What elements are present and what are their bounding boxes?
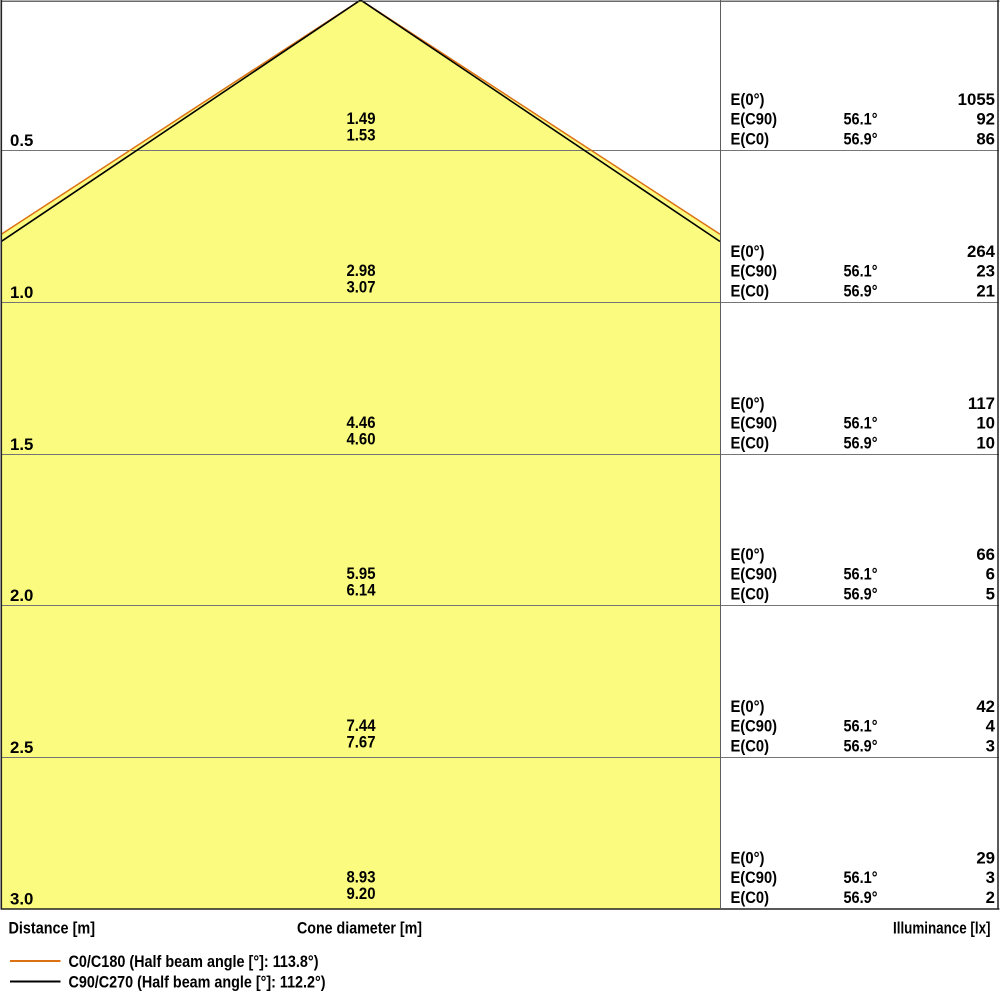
svg-text:1055: 1055 <box>958 90 995 109</box>
svg-text:56.9°: 56.9° <box>844 282 878 301</box>
svg-text:1.0: 1.0 <box>10 283 33 302</box>
svg-text:42: 42 <box>976 697 995 716</box>
svg-text:1.53: 1.53 <box>347 125 376 144</box>
svg-text:1.5: 1.5 <box>10 435 33 454</box>
svg-text:E(C90): E(C90) <box>731 868 778 887</box>
svg-text:86: 86 <box>976 130 995 149</box>
svg-text:E(C90): E(C90) <box>731 414 778 433</box>
svg-text:7.67: 7.67 <box>347 732 376 751</box>
svg-text:Distance [m]: Distance [m] <box>9 918 96 937</box>
svg-text:3: 3 <box>986 868 995 887</box>
svg-text:E(0°): E(0°) <box>731 697 765 716</box>
svg-text:2.0: 2.0 <box>10 586 33 605</box>
svg-text:Cone diameter [m]: Cone diameter [m] <box>297 918 422 937</box>
svg-text:E(C0): E(C0) <box>731 585 770 604</box>
svg-text:56.9°: 56.9° <box>844 434 878 453</box>
svg-text:56.1°: 56.1° <box>844 414 878 433</box>
svg-text:10: 10 <box>976 434 995 453</box>
svg-text:3: 3 <box>986 737 995 756</box>
svg-text:E(C0): E(C0) <box>731 130 770 149</box>
svg-text:66: 66 <box>976 545 995 564</box>
svg-text:E(0°): E(0°) <box>731 848 765 867</box>
svg-text:3.07: 3.07 <box>347 277 376 296</box>
svg-text:Illuminance [lx]: Illuminance [lx] <box>893 918 991 937</box>
svg-text:56.9°: 56.9° <box>844 585 878 604</box>
svg-text:2: 2 <box>986 888 995 907</box>
svg-text:56.9°: 56.9° <box>844 888 878 907</box>
svg-text:21: 21 <box>976 282 995 301</box>
svg-text:56.1°: 56.1° <box>844 717 878 736</box>
svg-text:0.5: 0.5 <box>10 131 33 150</box>
svg-text:E(0°): E(0°) <box>731 545 765 564</box>
svg-text:E(C0): E(C0) <box>731 282 770 301</box>
svg-text:56.9°: 56.9° <box>844 130 878 149</box>
svg-text:E(C0): E(C0) <box>731 888 770 907</box>
svg-text:4: 4 <box>986 717 996 736</box>
svg-text:56.1°: 56.1° <box>844 868 878 887</box>
svg-text:E(C90): E(C90) <box>731 565 778 584</box>
svg-text:3.0: 3.0 <box>10 889 33 908</box>
svg-text:56.1°: 56.1° <box>844 110 878 129</box>
svg-text:264: 264 <box>967 242 996 261</box>
svg-text:56.1°: 56.1° <box>844 565 878 584</box>
svg-text:56.1°: 56.1° <box>844 262 878 281</box>
svg-text:6: 6 <box>986 565 995 584</box>
svg-text:E(C0): E(C0) <box>731 434 770 453</box>
svg-text:E(0°): E(0°) <box>731 90 765 109</box>
svg-text:5: 5 <box>986 585 995 604</box>
svg-text:C90/C270 (Half beam angle [°]:: C90/C270 (Half beam angle [°]: 112.2°) <box>69 973 326 992</box>
svg-text:29: 29 <box>976 848 995 867</box>
svg-text:4.60: 4.60 <box>347 429 376 448</box>
svg-text:E(C90): E(C90) <box>731 110 778 129</box>
svg-text:10: 10 <box>976 414 995 433</box>
svg-text:23: 23 <box>976 262 995 281</box>
svg-text:56.9°: 56.9° <box>844 737 878 756</box>
svg-text:E(C0): E(C0) <box>731 737 770 756</box>
svg-text:E(0°): E(0°) <box>731 242 765 261</box>
svg-text:2.5: 2.5 <box>10 738 33 757</box>
svg-text:E(0°): E(0°) <box>731 394 765 413</box>
svg-text:C0/C180 (Half beam angle [°]:: C0/C180 (Half beam angle [°]: 113.8°) <box>69 952 319 971</box>
svg-text:9.20: 9.20 <box>347 884 376 903</box>
svg-text:6.14: 6.14 <box>347 580 377 599</box>
svg-text:E(C90): E(C90) <box>731 717 778 736</box>
svg-text:117: 117 <box>968 394 995 413</box>
svg-text:E(C90): E(C90) <box>731 262 778 281</box>
svg-text:92: 92 <box>976 110 995 129</box>
